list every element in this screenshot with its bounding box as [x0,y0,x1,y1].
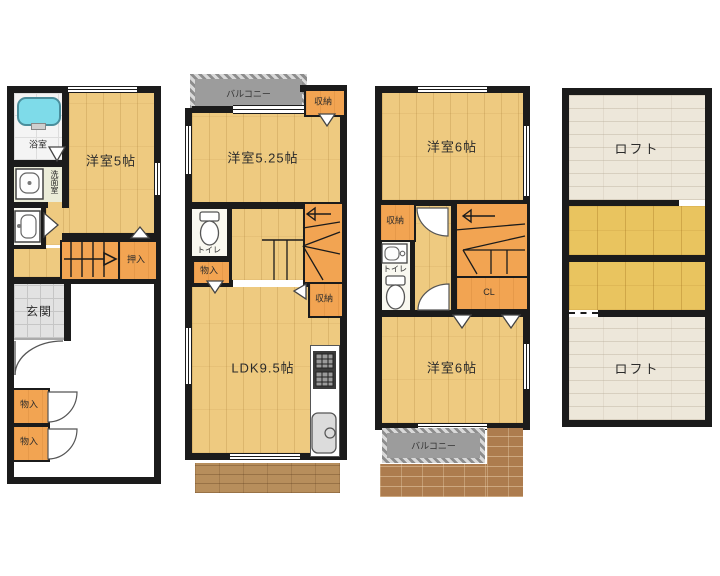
loft-mid-floor [569,262,705,310]
loft-top-label: ロフト [614,139,659,158]
loft-mid-floor [569,206,705,255]
genkan-label: 玄関 [26,303,52,320]
window [68,86,137,93]
balcony-floor: バルコニー [387,433,480,458]
western-room-525-label: 洋室5.25帖 [227,148,298,167]
stairs-arrow-icon [303,202,340,280]
washroom-label: 洗面室 [49,170,60,206]
toilet-icon [197,211,222,247]
bathroom-label: 浴室 [29,138,47,151]
floor-plan-canvas: 浴室 洗面室 洋室5帖 押入 玄関 物入 物入 バルコニー [0,0,720,576]
wall [410,241,415,313]
western-room-6-top-label: 洋室6帖 [427,137,477,156]
oshiire-label: 押入 [127,253,145,266]
storage-label: 物入 [20,398,38,411]
balcony-label: バルコニー [226,87,271,100]
ldk-label: LDK9.5帖 [231,358,294,377]
washbasin-icon [15,168,44,200]
storage-label: 物入 [20,435,38,448]
toilet-label: トイレ [197,245,221,256]
washbasin-icon [381,243,408,264]
door-triangle-icon [501,314,521,329]
toilet-icon [14,210,41,243]
bathtub-faucet-icon [31,123,46,130]
loft-bottom-label: ロフト [614,359,659,378]
door-triangle-icon [130,226,150,239]
window [233,105,305,114]
door-arc-icon [46,389,80,424]
closet-label: 収納 [315,292,333,305]
brick-area [380,464,487,497]
window [523,126,530,196]
wall [598,310,705,317]
toilet-label: トイレ [383,264,407,275]
stairs-arrow-icon [60,240,118,277]
window [154,163,161,195]
door-arc-icon [13,339,65,377]
dashed-wall [569,312,598,314]
door-triangle-icon [48,146,66,162]
wall [64,284,71,341]
stove-icon [313,351,336,389]
toilet-icon [383,275,408,311]
stairs-treads [262,240,303,280]
closet-label: 収納 [314,95,332,108]
window [185,126,192,174]
wall [7,477,161,484]
balcony-floor: バルコニー [195,79,302,108]
door-triangle-icon [43,212,59,238]
stairs-arrow-icon [455,202,525,274]
balcony: バルコニー [382,428,485,463]
door-triangle-icon [452,314,472,329]
window [418,86,487,93]
door-arc-icon [415,206,450,238]
window [523,344,530,389]
door-arc-icon [46,426,80,461]
wall [154,86,161,484]
door-triangle-icon [206,280,224,294]
door-triangle-icon [318,113,336,127]
door-triangle-icon [293,283,307,300]
storage-label: 物入 [200,264,218,277]
balcony-label: バルコニー [411,439,456,452]
wall [7,245,46,249]
brick-area [487,428,523,497]
door-arc-icon [416,282,451,312]
kitchen-sink-icon [311,412,337,454]
window [185,328,192,384]
western-room-6-bottom-label: 洋室6帖 [427,358,477,377]
wall [569,255,705,262]
wood-deck [195,463,340,493]
closet-label: 収納 [386,214,404,227]
bathtub-icon [17,97,61,126]
cl-label: CL [483,287,495,297]
window [230,453,300,460]
western-room-5-label: 洋室5帖 [86,151,136,170]
